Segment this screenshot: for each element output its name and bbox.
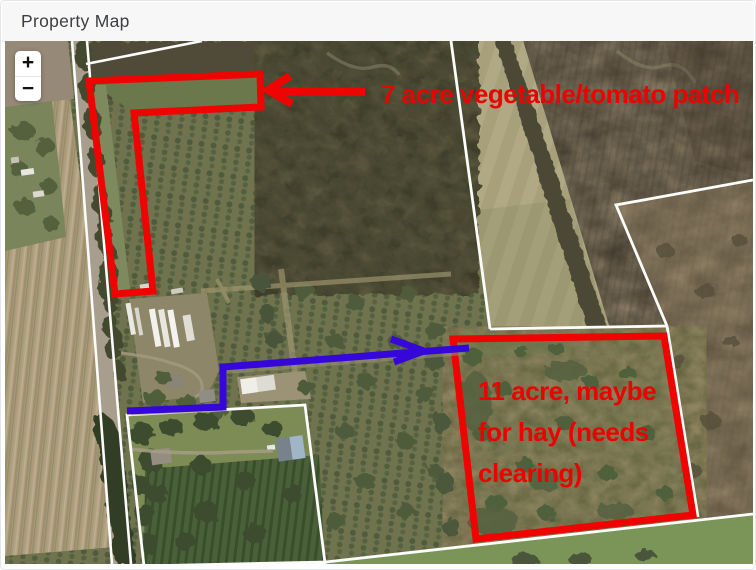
svg-text:for hay (needs: for hay (needs	[478, 417, 649, 447]
svg-text:clearing): clearing)	[478, 458, 582, 488]
svg-text:11 acre, maybe: 11 acre, maybe	[478, 376, 656, 406]
svg-text:7 acre vegetable/tomato patch: 7 acre vegetable/tomato patch	[381, 79, 739, 109]
